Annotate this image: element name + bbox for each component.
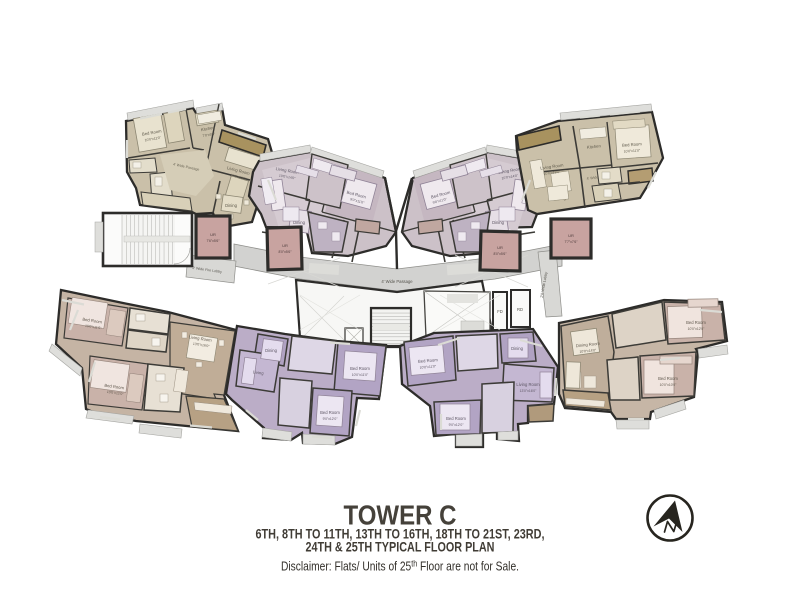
svg-text:7'7"x7'6": 7'7"x7'6"	[565, 240, 579, 244]
svg-text:10'0"x11'0": 10'0"x11'0"	[352, 373, 369, 377]
svg-text:UR: UR	[497, 245, 503, 250]
svg-text:7'6"x5'6": 7'6"x5'6"	[207, 239, 221, 243]
svg-text:10'0"x12'0": 10'0"x12'0"	[688, 327, 706, 331]
svg-text:Bed Room: Bed Room	[686, 320, 706, 325]
svg-text:Bed Room: Bed Room	[658, 376, 678, 381]
svg-text:24TH & 25TH TYPICAL FLOOR PLAN: 24TH & 25TH TYPICAL FLOOR PLAN	[306, 539, 495, 555]
svg-text:4' Wide Passage: 4' Wide Passage	[381, 279, 413, 284]
svg-text:UR: UR	[568, 233, 574, 238]
svg-text:13'0"x16'0": 13'0"x16'0"	[520, 389, 538, 393]
svg-text:Disclaimer: Flats/ Units of 25: Disclaimer: Flats/ Units of 25th Floor a…	[281, 559, 519, 574]
svg-text:RD: RD	[517, 307, 523, 312]
svg-text:FD: FD	[497, 309, 503, 314]
svg-text:9'0"x12'0": 9'0"x12'0"	[449, 423, 465, 427]
svg-text:Bed Room: Bed Room	[320, 410, 340, 415]
svg-text:9'0"x12'0": 9'0"x12'0"	[323, 417, 339, 421]
svg-text:Dining: Dining	[265, 348, 278, 353]
svg-text:10'0"x10'0": 10'0"x10'0"	[660, 383, 678, 387]
svg-text:UR: UR	[282, 243, 288, 248]
svg-text:8'0"x5'6": 8'0"x5'6"	[494, 252, 508, 256]
svg-text:Bed Room: Bed Room	[446, 416, 466, 421]
svg-text:Dining: Dining	[225, 203, 238, 208]
svg-text:Living Room: Living Room	[516, 382, 540, 387]
svg-text:Dining: Dining	[511, 346, 524, 351]
svg-text:Bed Room: Bed Room	[350, 366, 370, 371]
svg-text:UR: UR	[210, 232, 216, 237]
svg-text:8'0"x5'6": 8'0"x5'6"	[279, 250, 293, 254]
